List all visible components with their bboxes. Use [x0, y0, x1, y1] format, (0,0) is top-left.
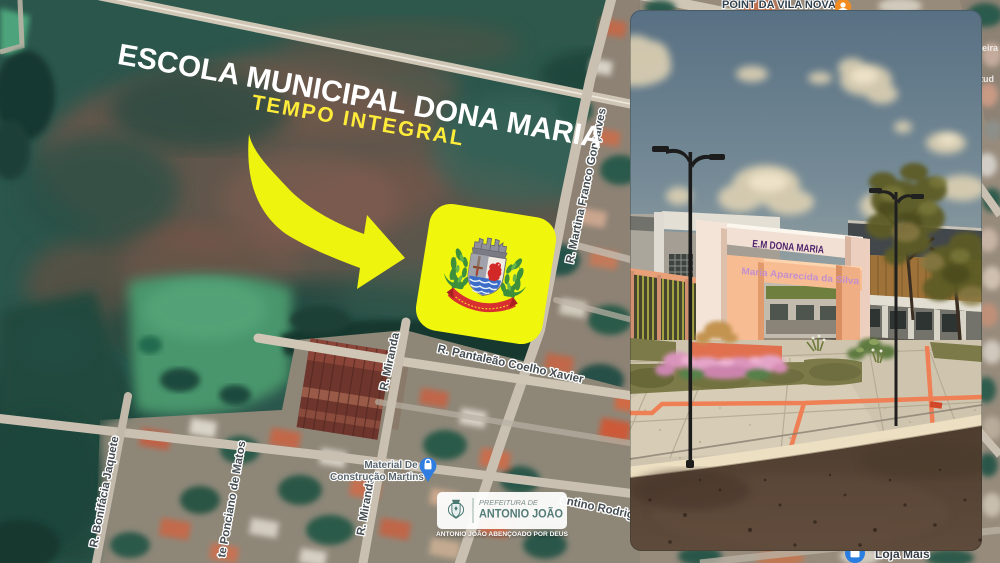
- svg-text:eira: eira: [982, 43, 999, 53]
- svg-text:ANTONIO JOÃO: ANTONIO JOÃO: [479, 508, 563, 521]
- svg-text:Construção Martins: Construção Martins: [330, 472, 424, 483]
- svg-text:PREFEITURA DE: PREFEITURA DE: [479, 498, 538, 507]
- svg-text:Material De: Material De: [364, 460, 418, 471]
